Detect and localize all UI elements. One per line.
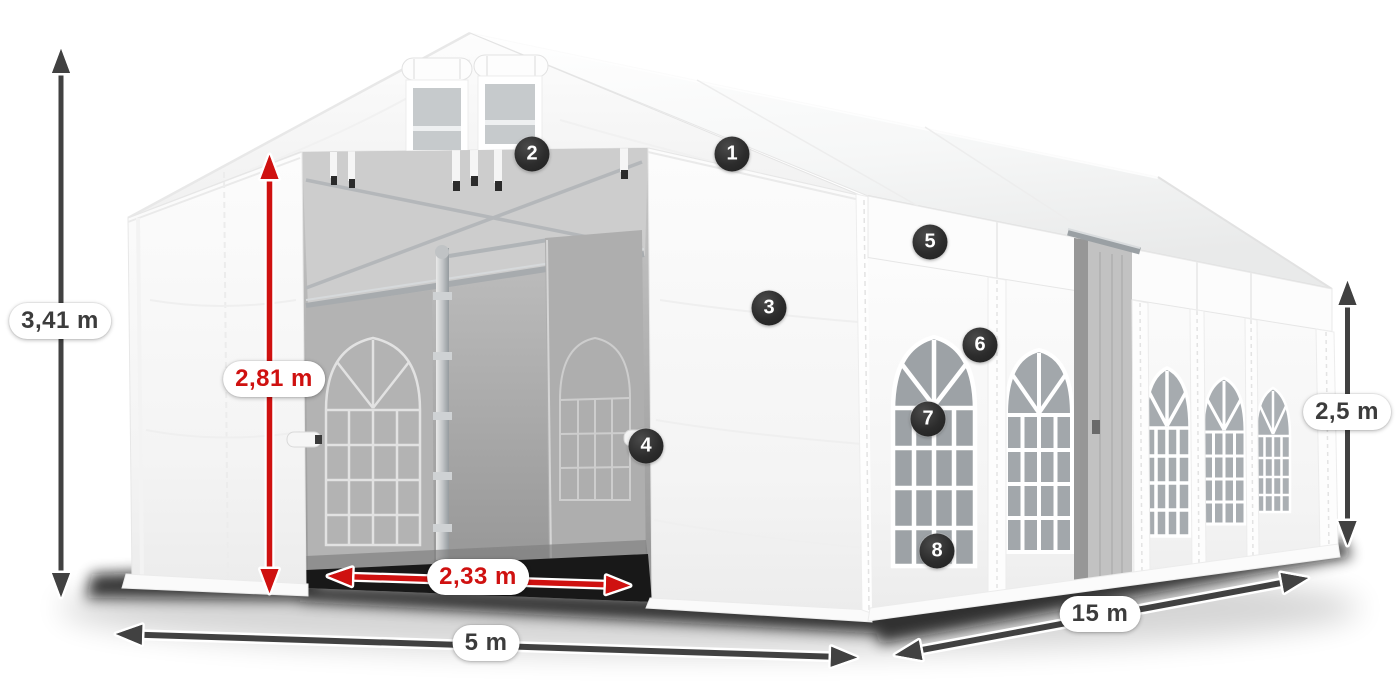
dimension-label-front-width: 5 m bbox=[453, 625, 520, 661]
callout-badge-4[interactable]: 4 bbox=[629, 429, 664, 464]
callout-badge-3[interactable]: 3 bbox=[752, 291, 787, 326]
dimension-label-entrance-width: 2,33 m bbox=[427, 559, 529, 595]
callout-badge-7[interactable]: 7 bbox=[911, 402, 946, 437]
tent-illustration bbox=[0, 0, 1400, 700]
dimension-label-total-height: 3,41 m bbox=[9, 303, 111, 339]
callout-badge-5[interactable]: 5 bbox=[913, 225, 948, 260]
callout-badge-8[interactable]: 8 bbox=[920, 534, 955, 569]
callout-badge-2[interactable]: 2 bbox=[515, 137, 550, 172]
side-window-3 bbox=[1145, 368, 1190, 536]
dimension-label-wall-height: 2,5 m bbox=[1303, 394, 1391, 430]
side-window-1 bbox=[893, 337, 975, 566]
dimension-label-entrance-height: 2,81 m bbox=[223, 361, 325, 397]
side-window-4 bbox=[1203, 378, 1245, 524]
entrance-opening bbox=[302, 146, 652, 602]
door-handle bbox=[287, 432, 322, 447]
side-window-5 bbox=[1256, 388, 1290, 512]
front-right-door-panel bbox=[624, 148, 880, 622]
callout-badge-1[interactable]: 1 bbox=[715, 137, 750, 172]
side-doorway bbox=[1068, 229, 1140, 584]
side-window-2 bbox=[1006, 350, 1072, 552]
dimension-label-side-length: 15 m bbox=[1060, 596, 1141, 632]
tent-dimension-diagram: 3,41 m 2,81 m 2,33 m 5 m 15 m 2,5 m 1 2 … bbox=[0, 0, 1400, 700]
callout-badge-6[interactable]: 6 bbox=[963, 328, 998, 363]
